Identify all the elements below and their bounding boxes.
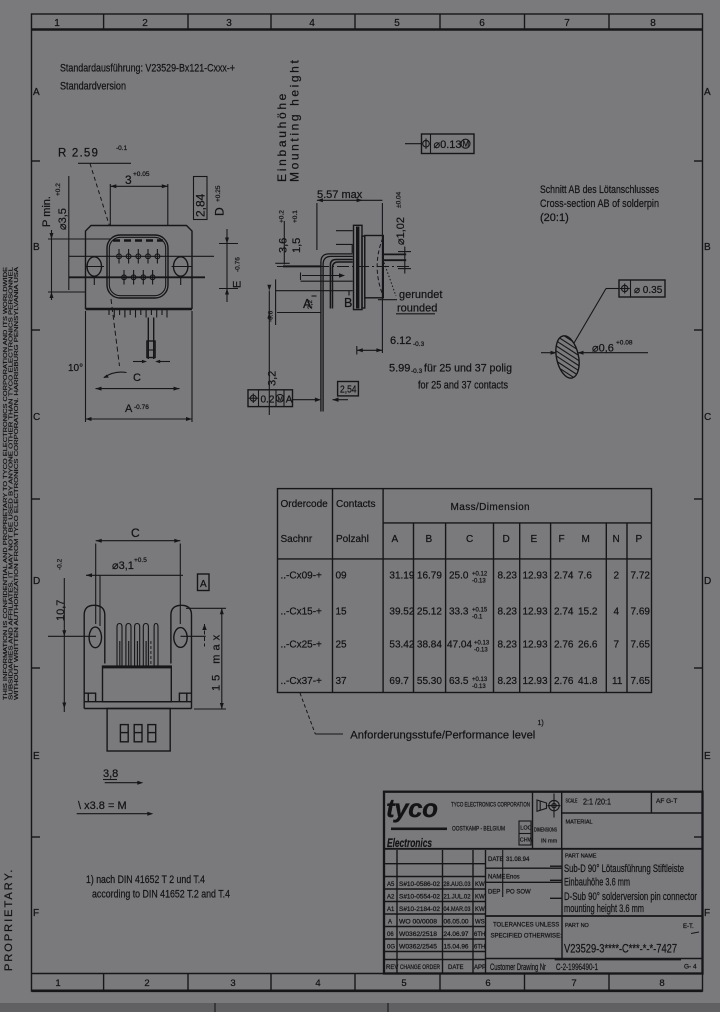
svg-text:A1: A1 (387, 907, 395, 913)
svg-text:⌀0,6: ⌀0,6 (592, 343, 614, 355)
svg-text:M: M (463, 140, 470, 149)
svg-text:Customer Drawing Nr: Customer Drawing Nr (490, 962, 546, 972)
svg-text:06.05.00: 06.05.00 (444, 920, 470, 926)
svg-text:6TH: 6TH (474, 932, 485, 938)
svg-text:31.08.94: 31.08.94 (506, 857, 530, 863)
svg-text:8: 8 (650, 18, 656, 29)
svg-text:AF G-T: AF G-T (656, 798, 677, 805)
svg-text:für 25 und 37 polig: für 25 und 37 polig (424, 363, 512, 375)
svg-text:+0.13: +0.13 (474, 641, 490, 647)
svg-text:25: 25 (336, 640, 348, 651)
svg-text:C: C (33, 412, 40, 423)
svg-text:6TH: 6TH (474, 945, 485, 951)
svg-text:NAME: NAME (488, 875, 505, 881)
svg-text:S#10-0586-02: S#10-0586-02 (399, 882, 441, 888)
svg-text:8.23: 8.23 (498, 640, 518, 651)
svg-text:A: A (200, 579, 207, 590)
svg-text:-0.3: -0.3 (411, 368, 423, 375)
svg-text:2: 2 (142, 18, 148, 29)
svg-text:E-T.: E-T. (683, 924, 694, 930)
svg-text:12.93: 12.93 (523, 676, 548, 687)
svg-text:53.42: 53.42 (389, 640, 414, 651)
svg-text:-0.13: -0.13 (474, 648, 488, 654)
svg-text:S#10-0554-02: S#10-0554-02 (399, 895, 441, 901)
svg-text:7: 7 (571, 978, 576, 989)
svg-text:TYCO ELECTRONICS CORPORATION: TYCO ELECTRONICS CORPORATION (451, 802, 530, 809)
svg-text:39.52: 39.52 (389, 607, 414, 618)
svg-text:5.57 max: 5.57 max (317, 189, 363, 201)
svg-text:A: A (125, 403, 133, 415)
svg-text:S#10-2184-02: S#10-2184-02 (399, 907, 441, 913)
svg-text:+0.08: +0.08 (616, 340, 633, 347)
svg-text:⌀3,1: ⌀3,1 (112, 560, 134, 572)
svg-text:11: 11 (612, 676, 623, 687)
svg-text:DATE: DATE (488, 857, 504, 863)
svg-text:Polzahl: Polzahl (336, 534, 369, 545)
svg-text:5.99: 5.99 (389, 363, 410, 375)
svg-text:3: 3 (230, 978, 235, 989)
svg-text:B: B (33, 242, 40, 253)
svg-text:C: C (133, 372, 141, 384)
svg-text:B: B (344, 296, 352, 310)
svg-text:Mounting height: Mounting height (288, 58, 302, 182)
svg-text:TOLERANCES UNLESS: TOLERANCES UNLESS (493, 923, 559, 929)
svg-text:10°: 10° (68, 363, 83, 374)
svg-text:according to DIN 41652 T.2 and: according to DIN 41652 T.2 and T.4 (92, 889, 230, 901)
svg-text:69.7: 69.7 (389, 676, 409, 687)
svg-text:F: F (559, 534, 565, 545)
svg-text:SPECIFIED OTHERWISE:: SPECIFIED OTHERWISE: (491, 934, 563, 940)
svg-text:⌀0.13: ⌀0.13 (434, 139, 462, 151)
svg-text:..-Cx25-+: ..-Cx25-+ (281, 640, 323, 651)
svg-text:15.2: 15.2 (578, 607, 598, 618)
svg-text:Mass/Dimension: Mass/Dimension (451, 502, 531, 513)
svg-text:2: 2 (614, 571, 620, 582)
svg-text:31.19: 31.19 (389, 571, 414, 582)
svg-text:1) nach DIN 41652 T 2 und T.4: 1) nach DIN 41652 T 2 und T.4 (86, 874, 205, 886)
svg-text:-0.76: -0.76 (134, 404, 149, 411)
svg-text:B: B (426, 534, 433, 545)
svg-text:mounting height 3.6 mm: mounting height 3.6 mm (564, 903, 644, 915)
svg-text:CHANGE ORDER: CHANGE ORDER (400, 965, 441, 971)
svg-text:8.23: 8.23 (498, 676, 518, 687)
svg-text:F: F (704, 908, 710, 919)
svg-text:63.5: 63.5 (449, 676, 469, 687)
svg-text:E: E (531, 534, 538, 545)
svg-text:APP: APP (474, 965, 486, 971)
svg-text:-0.3: -0.3 (413, 341, 425, 348)
svg-text:37: 37 (336, 676, 348, 687)
svg-text:47.04: 47.04 (447, 640, 472, 651)
svg-text:Enos: Enos (506, 875, 520, 881)
svg-text:C-2-1996490-1: C-2-1996490-1 (556, 962, 598, 972)
svg-text:MATERIAL: MATERIAL (566, 820, 593, 826)
svg-text:12.93: 12.93 (523, 640, 548, 651)
svg-text:2,54: 2,54 (340, 385, 357, 396)
svg-text:IN mm: IN mm (541, 839, 558, 845)
svg-text:8.23: 8.23 (498, 607, 518, 618)
svg-text:33.3: 33.3 (449, 607, 469, 618)
svg-text:C: C (131, 526, 140, 540)
svg-text:+0.12: +0.12 (472, 572, 488, 578)
svg-text:E: E (33, 751, 40, 762)
svg-text:Anforderungsstufe/Performance: Anforderungsstufe/Performance level (350, 730, 535, 742)
svg-text:26.6: 26.6 (578, 640, 598, 651)
svg-text:OOSTKAMP - BELGIUM: OOSTKAMP - BELGIUM (452, 826, 505, 833)
svg-text:-0.13: -0.13 (472, 684, 486, 690)
svg-text:Standardversion: Standardversion (60, 81, 126, 93)
svg-text:7.65: 7.65 (631, 640, 651, 651)
svg-text:-0.1: -0.1 (472, 615, 483, 621)
svg-text:3,6: 3,6 (278, 238, 290, 253)
svg-text:+0.25: +0.25 (215, 185, 222, 202)
svg-text:PART NAME: PART NAME (565, 854, 597, 860)
svg-text:A5: A5 (387, 882, 395, 888)
svg-text:25.12: 25.12 (417, 607, 442, 618)
svg-text:\ x3.8 = M: \ x3.8 = M (78, 800, 127, 812)
svg-text:DIMENSIONS: DIMENSIONS (534, 828, 557, 834)
svg-text:5: 5 (401, 978, 406, 989)
svg-text:C: C (704, 412, 711, 423)
svg-text:SCALE: SCALE (566, 799, 578, 805)
svg-text:A: A (704, 87, 711, 98)
svg-text:F: F (33, 908, 39, 919)
svg-text:Electronics: Electronics (387, 836, 432, 850)
svg-text:25.0: 25.0 (449, 571, 469, 582)
svg-text:15: 15 (336, 607, 348, 618)
svg-text:PROPRIETARY.: PROPRIETARY. (3, 868, 15, 971)
svg-text:4: 4 (614, 607, 620, 618)
svg-text:Ordercode: Ordercode (281, 499, 329, 510)
svg-text:D: D (704, 576, 711, 587)
svg-text:55.30: 55.30 (417, 676, 442, 687)
svg-text:+0.2: +0.2 (55, 183, 62, 196)
svg-text:3: 3 (125, 173, 132, 187)
svg-text:3,8: 3,8 (103, 768, 118, 780)
svg-text:10,7: 10,7 (55, 600, 67, 621)
svg-text:24.06.97: 24.06.97 (444, 932, 470, 938)
svg-text:DEP: DEP (488, 890, 500, 896)
svg-text:-0.1: -0.1 (116, 145, 128, 152)
svg-text:Sub-D 90° Lötausführung Stiftl: Sub-D 90° Lötausführung Stiftleiste (564, 863, 684, 875)
svg-text:KW: KW (475, 882, 485, 888)
svg-text:WO 00/0008: WO 00/0008 (399, 920, 438, 926)
svg-text:PO SOW: PO SOW (506, 890, 531, 896)
svg-text:4: 4 (309, 18, 315, 29)
svg-text:W0362/2545: W0362/2545 (399, 945, 438, 951)
svg-text:4: 4 (315, 978, 320, 989)
svg-text:Sachnr: Sachnr (281, 534, 313, 545)
svg-text:rounded: rounded (397, 303, 437, 315)
svg-text:..-Cx09-+: ..-Cx09-+ (281, 571, 323, 582)
svg-text:7.72: 7.72 (631, 571, 651, 582)
svg-text:..-Cx15-+: ..-Cx15-+ (281, 607, 323, 618)
svg-text:5: 5 (394, 18, 400, 29)
svg-text:2.74: 2.74 (554, 607, 574, 618)
svg-text:M: M (582, 534, 590, 545)
svg-text:R 2.59: R 2.59 (58, 148, 99, 160)
svg-text:D-Sub 90° solderversion pin co: D-Sub 90° solderversion pin connector (564, 891, 697, 903)
svg-text:41.8: 41.8 (578, 676, 598, 687)
svg-text:Contacts: Contacts (336, 499, 375, 510)
svg-text:28.AUG.03: 28.AUG.03 (444, 882, 472, 888)
svg-text:A: A (286, 394, 293, 405)
svg-text:A: A (392, 534, 399, 545)
svg-text:8.23: 8.23 (498, 571, 518, 582)
svg-text:V23529-3****-C***-*-*-7427: V23529-3****-C***-*-*-7427 (564, 944, 677, 956)
svg-text:+0.15: +0.15 (472, 608, 488, 614)
svg-text:12.93: 12.93 (523, 571, 548, 582)
svg-text:WS: WS (475, 920, 485, 926)
svg-text:6: 6 (485, 978, 490, 989)
svg-text:+0.1: +0.1 (292, 210, 299, 223)
svg-text:2.76: 2.76 (554, 676, 574, 687)
svg-text:..-Cx37-+: ..-Cx37-+ (281, 676, 323, 687)
svg-text:2.74: 2.74 (554, 571, 574, 582)
svg-text:A: A (388, 920, 392, 926)
svg-text:8: 8 (659, 978, 664, 989)
svg-text:G- 4: G- 4 (684, 964, 697, 971)
svg-text:-0.13: -0.13 (472, 579, 486, 585)
svg-text:KW: KW (475, 895, 485, 901)
svg-text:WITHOUT WRITTEN AUTHORIZATION: WITHOUT WRITTEN AUTHORIZATION FROM TYCO … (14, 267, 20, 700)
svg-text:tyco: tyco (386, 793, 438, 823)
svg-text:7: 7 (614, 640, 620, 651)
svg-text:gerundet: gerundet (399, 289, 442, 301)
svg-text:E: E (232, 281, 244, 288)
svg-text:⌀3,5: ⌀3,5 (57, 208, 69, 230)
svg-text:0.2: 0.2 (261, 394, 275, 405)
svg-text:N: N (613, 534, 620, 545)
svg-text:09: 09 (336, 571, 348, 582)
svg-text:DATE: DATE (448, 965, 464, 971)
svg-text:M: M (278, 396, 283, 403)
svg-text:2.76: 2.76 (554, 640, 574, 651)
svg-text:7: 7 (564, 18, 570, 29)
svg-text:A: A (33, 87, 40, 98)
svg-text:P: P (636, 534, 643, 545)
svg-text:Schnitt AB des Lötanschlusses: Schnitt AB des Lötanschlusses (540, 184, 659, 196)
svg-text:Standardausführung: V23529-Bx1: Standardausführung: V23529-Bx121-Cxxx-+ (60, 63, 235, 75)
svg-text:REV: REV (386, 965, 398, 971)
svg-text:Cross-section AB of solderpin: Cross-section AB of solderpin (540, 198, 659, 210)
svg-text:06: 06 (387, 932, 394, 938)
svg-text:0G: 0G (387, 945, 395, 951)
svg-text:±0.04: ±0.04 (396, 191, 403, 208)
svg-text:-0.2: -0.2 (57, 558, 64, 570)
svg-text:3: 3 (226, 18, 232, 29)
svg-text:1: 1 (54, 18, 60, 29)
svg-text:Einbauhöhe 3.6 mm: Einbauhöhe 3.6 mm (564, 877, 630, 889)
svg-text:3,2: 3,2 (267, 371, 279, 386)
svg-text:7.65: 7.65 (631, 676, 651, 687)
svg-text:⌀1,02: ⌀1,02 (395, 217, 407, 245)
svg-text:1): 1) (538, 720, 544, 727)
svg-text:+0.5: +0.5 (134, 557, 147, 564)
svg-text:⌀ 0.35: ⌀ 0.35 (634, 285, 663, 296)
svg-text:LOC: LOC (520, 826, 531, 832)
svg-text:KW: KW (475, 907, 485, 913)
svg-text:7.6: 7.6 (578, 571, 592, 582)
svg-text:E: E (704, 751, 711, 762)
svg-text:2:1 /20:1: 2:1 /20:1 (583, 798, 611, 807)
svg-text:38.84: 38.84 (417, 640, 442, 651)
svg-text:1,5: 1,5 (291, 238, 303, 253)
svg-text:21.JUL.02: 21.JUL.02 (444, 895, 472, 901)
svg-text:12.93: 12.93 (523, 607, 548, 618)
svg-text:(20:1): (20:1) (540, 212, 569, 224)
svg-text:A: A (303, 297, 312, 311)
svg-text:D: D (33, 576, 40, 587)
svg-text:15 max: 15 max (211, 631, 223, 691)
svg-text:P min.: P min. (41, 196, 53, 227)
svg-text:CHW: CHW (520, 838, 534, 844)
svg-text:6.12: 6.12 (390, 335, 411, 347)
svg-text:04.MAR.03: 04.MAR.03 (444, 907, 472, 913)
svg-text:W0362/2518: W0362/2518 (399, 932, 438, 938)
svg-text:15.04.96: 15.04.96 (444, 945, 470, 951)
svg-text:PART NO: PART NO (565, 923, 590, 929)
svg-text:1: 1 (55, 978, 60, 989)
svg-text:16.79: 16.79 (417, 571, 442, 582)
svg-text:2: 2 (144, 978, 149, 989)
svg-text:C: C (466, 534, 473, 545)
svg-text:D: D (503, 534, 510, 545)
svg-text:2,84: 2,84 (194, 193, 208, 217)
svg-text:D: D (213, 207, 227, 216)
svg-text:-0.76: -0.76 (235, 257, 242, 272)
svg-text:+0.13: +0.13 (472, 677, 488, 683)
svg-text:B: B (704, 242, 711, 253)
svg-text:A2: A2 (387, 895, 395, 901)
svg-text:+0.05: +0.05 (133, 171, 150, 178)
svg-text:7.69: 7.69 (631, 607, 651, 618)
svg-text:for 25 and 37 contacts: for 25 and 37 contacts (418, 380, 508, 392)
svg-text:6: 6 (479, 18, 485, 29)
